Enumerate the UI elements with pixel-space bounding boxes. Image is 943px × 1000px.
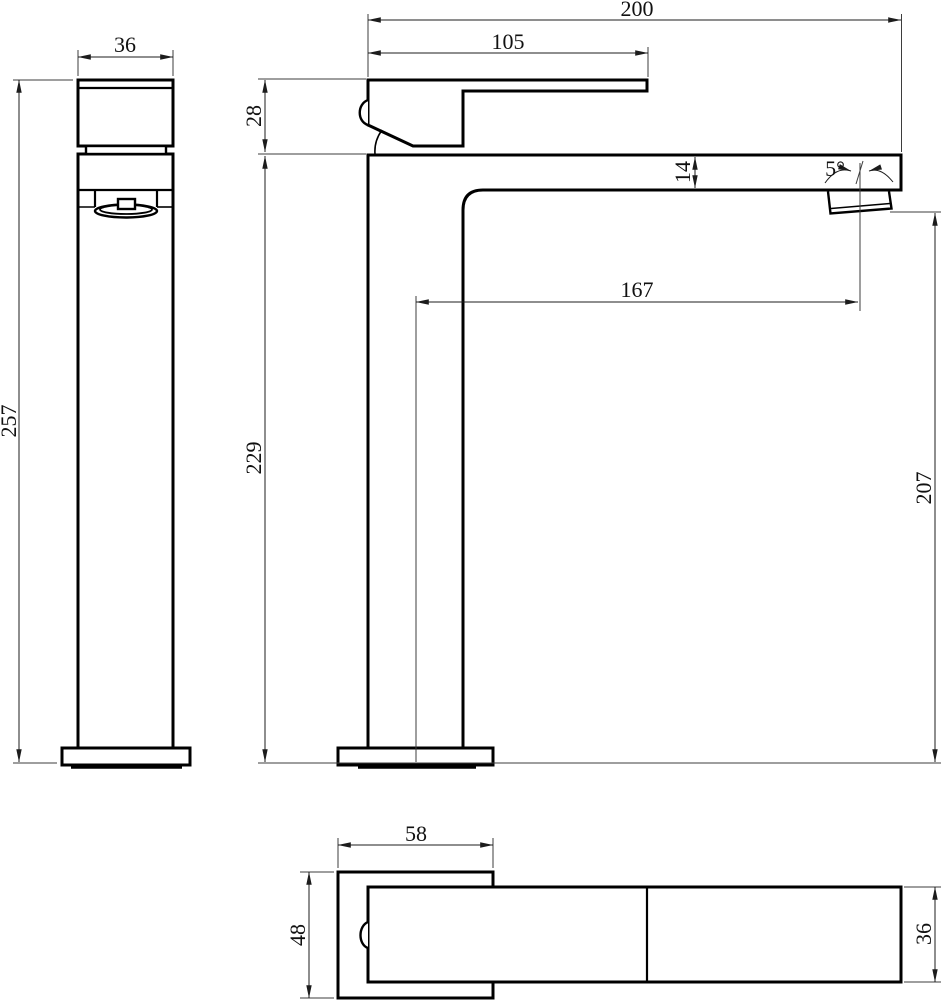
- dim-outlet-height-label: 207: [911, 472, 936, 505]
- dim-top-body-width: 36: [904, 887, 941, 982]
- dim-side-height: 257: [0, 80, 73, 763]
- front-spout-body: [368, 155, 901, 748]
- front-handle-button-bump: [360, 100, 368, 125]
- side-neck: [86, 146, 166, 154]
- dim-front-spout-reach: 167: [416, 277, 858, 762]
- dim-top-base-width: 58: [338, 821, 493, 868]
- dim-front-spout-thickness: 14: [670, 157, 695, 188]
- side-view: 36 257: [0, 32, 190, 767]
- dim-top-base-depth: 48: [285, 872, 334, 998]
- dim-side-width-label: 36: [114, 32, 136, 57]
- dim-side-width: 36: [78, 32, 173, 76]
- dim-side-height-label: 257: [0, 405, 21, 438]
- dim-body-width-label: 36: [911, 923, 936, 945]
- dim-handle-height-label: 28: [241, 105, 266, 127]
- side-handle-block: [78, 80, 173, 146]
- side-aerator-tab: [118, 199, 135, 209]
- dim-front-body-height: 229: [241, 156, 266, 762]
- side-base-plate: [62, 748, 190, 765]
- dim-spout-thickness-label: 14: [670, 161, 695, 183]
- dim-front-outlet-height: 207: [890, 212, 941, 762]
- dim-body-height-label: 229: [241, 442, 266, 475]
- dim-base-width-label: 58: [405, 821, 427, 846]
- dim-handle-length-label: 105: [492, 29, 525, 54]
- top-view: 58 48 36: [285, 821, 941, 998]
- dim-spout-reach-label: 167: [621, 277, 654, 302]
- front-handle-lever: [368, 80, 647, 146]
- dim-front-handle-length: 105: [368, 29, 648, 77]
- faucet-technical-drawing: 36 257 200: [0, 0, 943, 1000]
- dim-spout-angle-label: 5°: [825, 156, 845, 181]
- side-body-column: [78, 154, 173, 748]
- dim-total-length-label: 200: [621, 0, 654, 21]
- dim-front-handle-height: 28: [241, 79, 366, 154]
- dim-base-depth-label: 48: [285, 924, 310, 946]
- top-body-outline: [368, 887, 901, 982]
- front-view: 200 105 28 229 14: [241, 0, 941, 767]
- drawing-page: 36 257 200: [0, 0, 943, 1000]
- front-handle-under-arc: [375, 130, 382, 154]
